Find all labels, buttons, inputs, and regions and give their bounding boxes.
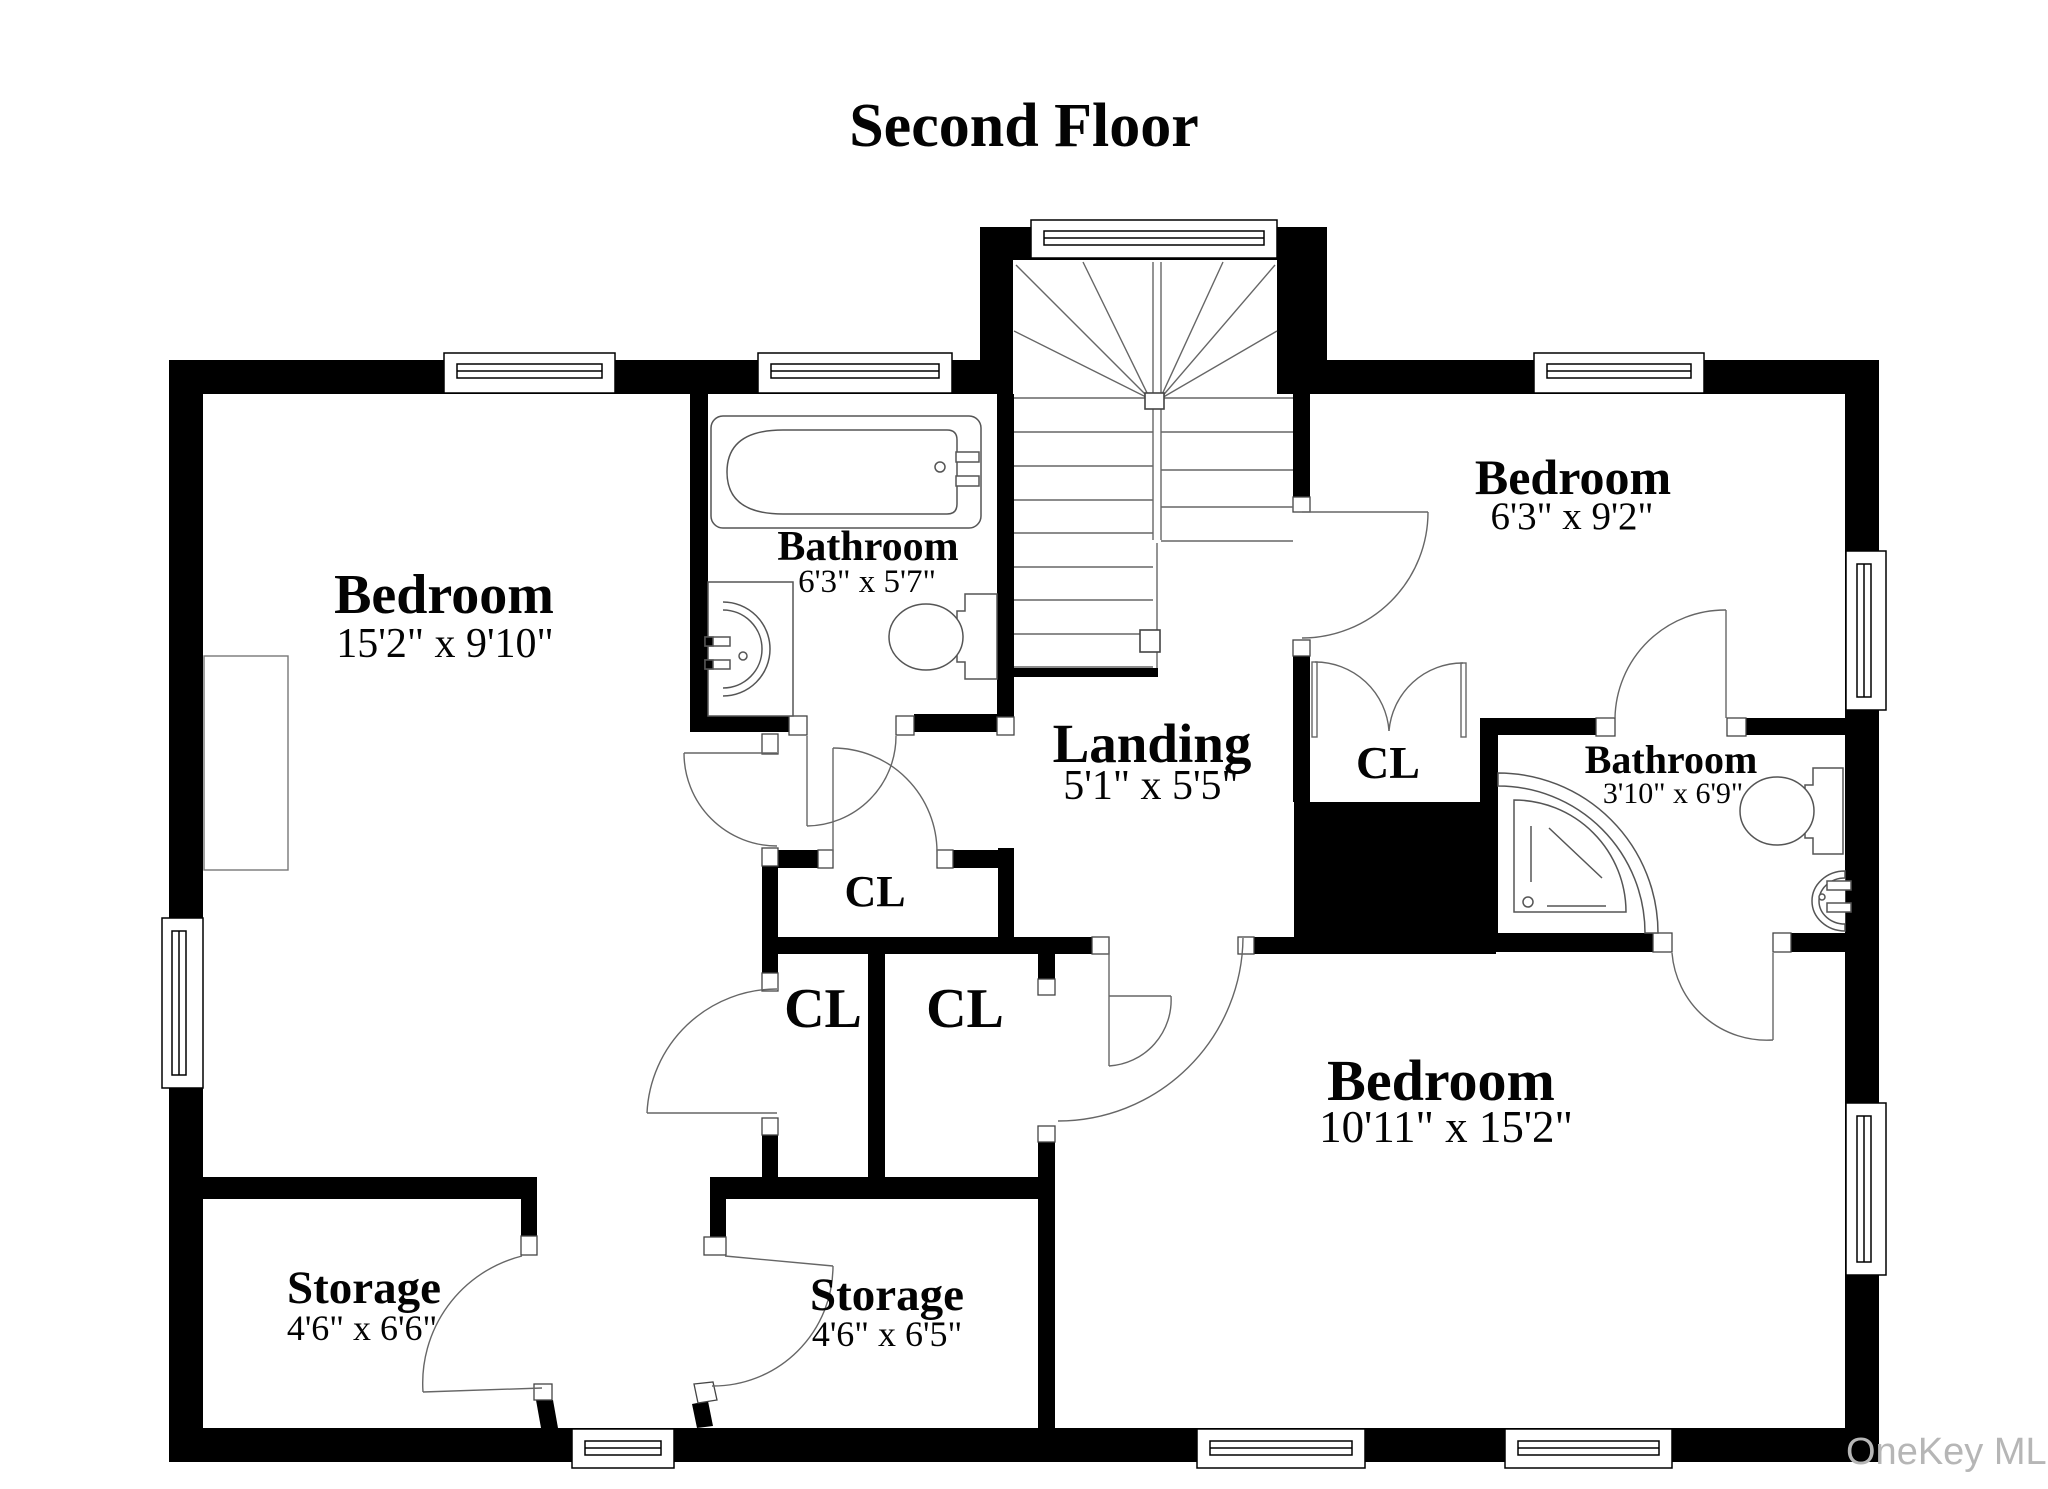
svg-text:CL: CL xyxy=(926,978,1004,1040)
svg-text:6'3" x 5'7": 6'3" x 5'7" xyxy=(798,564,936,600)
svg-text:Storage: Storage xyxy=(287,1262,441,1314)
svg-text:CL: CL xyxy=(844,867,905,916)
svg-text:5'1" x 5'5": 5'1" x 5'5" xyxy=(1063,763,1238,809)
svg-text:Second Floor: Second Floor xyxy=(849,92,1199,160)
svg-text:CL: CL xyxy=(784,978,862,1040)
svg-text:OneKey MLS: OneKey MLS xyxy=(1846,1431,2048,1473)
svg-text:CL: CL xyxy=(1356,737,1420,788)
svg-text:6'3" x 9'2": 6'3" x 9'2" xyxy=(1491,495,1654,538)
svg-text:4'6" x 6'5": 4'6" x 6'5" xyxy=(812,1314,962,1354)
svg-text:Bathroom: Bathroom xyxy=(1585,737,1758,782)
svg-text:Bedroom: Bedroom xyxy=(334,564,554,626)
svg-text:4'6" x 6'6": 4'6" x 6'6" xyxy=(287,1308,437,1348)
svg-text:15'2" x 9'10": 15'2" x 9'10" xyxy=(336,621,553,667)
svg-text:3'10" x 6'9": 3'10" x 6'9" xyxy=(1603,777,1743,810)
svg-text:10'11" x 15'2": 10'11" x 15'2" xyxy=(1319,1102,1573,1152)
